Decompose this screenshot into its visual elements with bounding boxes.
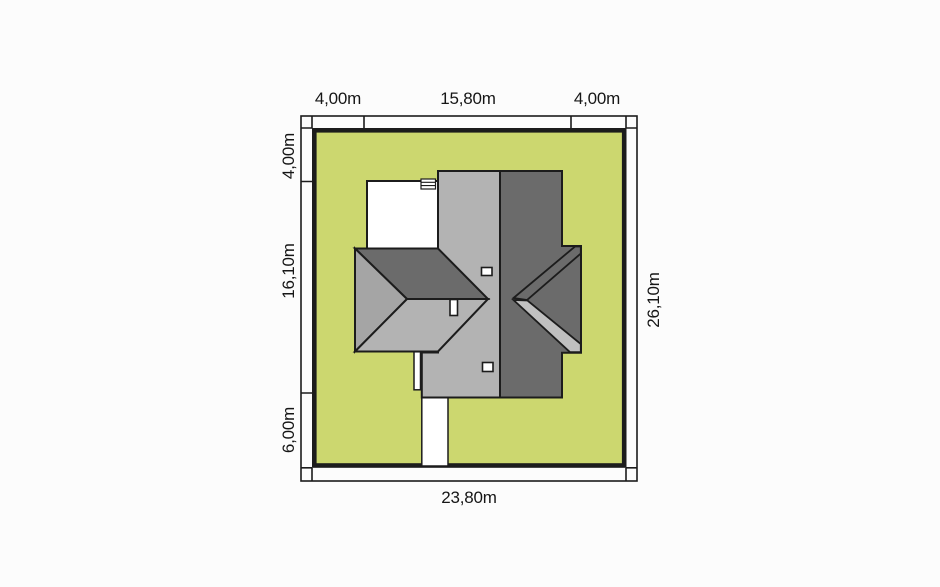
dimension-label-top-left: 4,00m bbox=[315, 89, 361, 108]
dimension-label-bottom: 23,80m bbox=[441, 488, 497, 507]
dimension-label-left-upper: 4,00m bbox=[279, 133, 298, 179]
dimension-label-top-middle: 15,80m bbox=[440, 89, 496, 108]
dimension-label-left-lower: 6,00m bbox=[279, 407, 298, 453]
dimension-label-top-right: 4,00m bbox=[574, 89, 620, 108]
dimension-label-right: 26,10m bbox=[644, 272, 663, 328]
chimney-upper bbox=[482, 268, 493, 276]
terrace-steps-box bbox=[421, 179, 436, 189]
site-plan-drawing: 4,00m 15,80m 4,00m 4,00m 16,10m 6,00m 26… bbox=[0, 0, 940, 587]
site-plan: 4,00m 15,80m 4,00m 4,00m 16,10m 6,00m 26… bbox=[0, 0, 940, 587]
terrace bbox=[367, 181, 438, 249]
driveway bbox=[422, 397, 448, 466]
terrace-steps bbox=[421, 179, 436, 189]
chimney-ridge bbox=[450, 300, 458, 316]
chimney-lower bbox=[483, 363, 494, 372]
side-wall-strip bbox=[414, 352, 421, 390]
dimension-label-left-middle: 16,10m bbox=[279, 243, 298, 299]
